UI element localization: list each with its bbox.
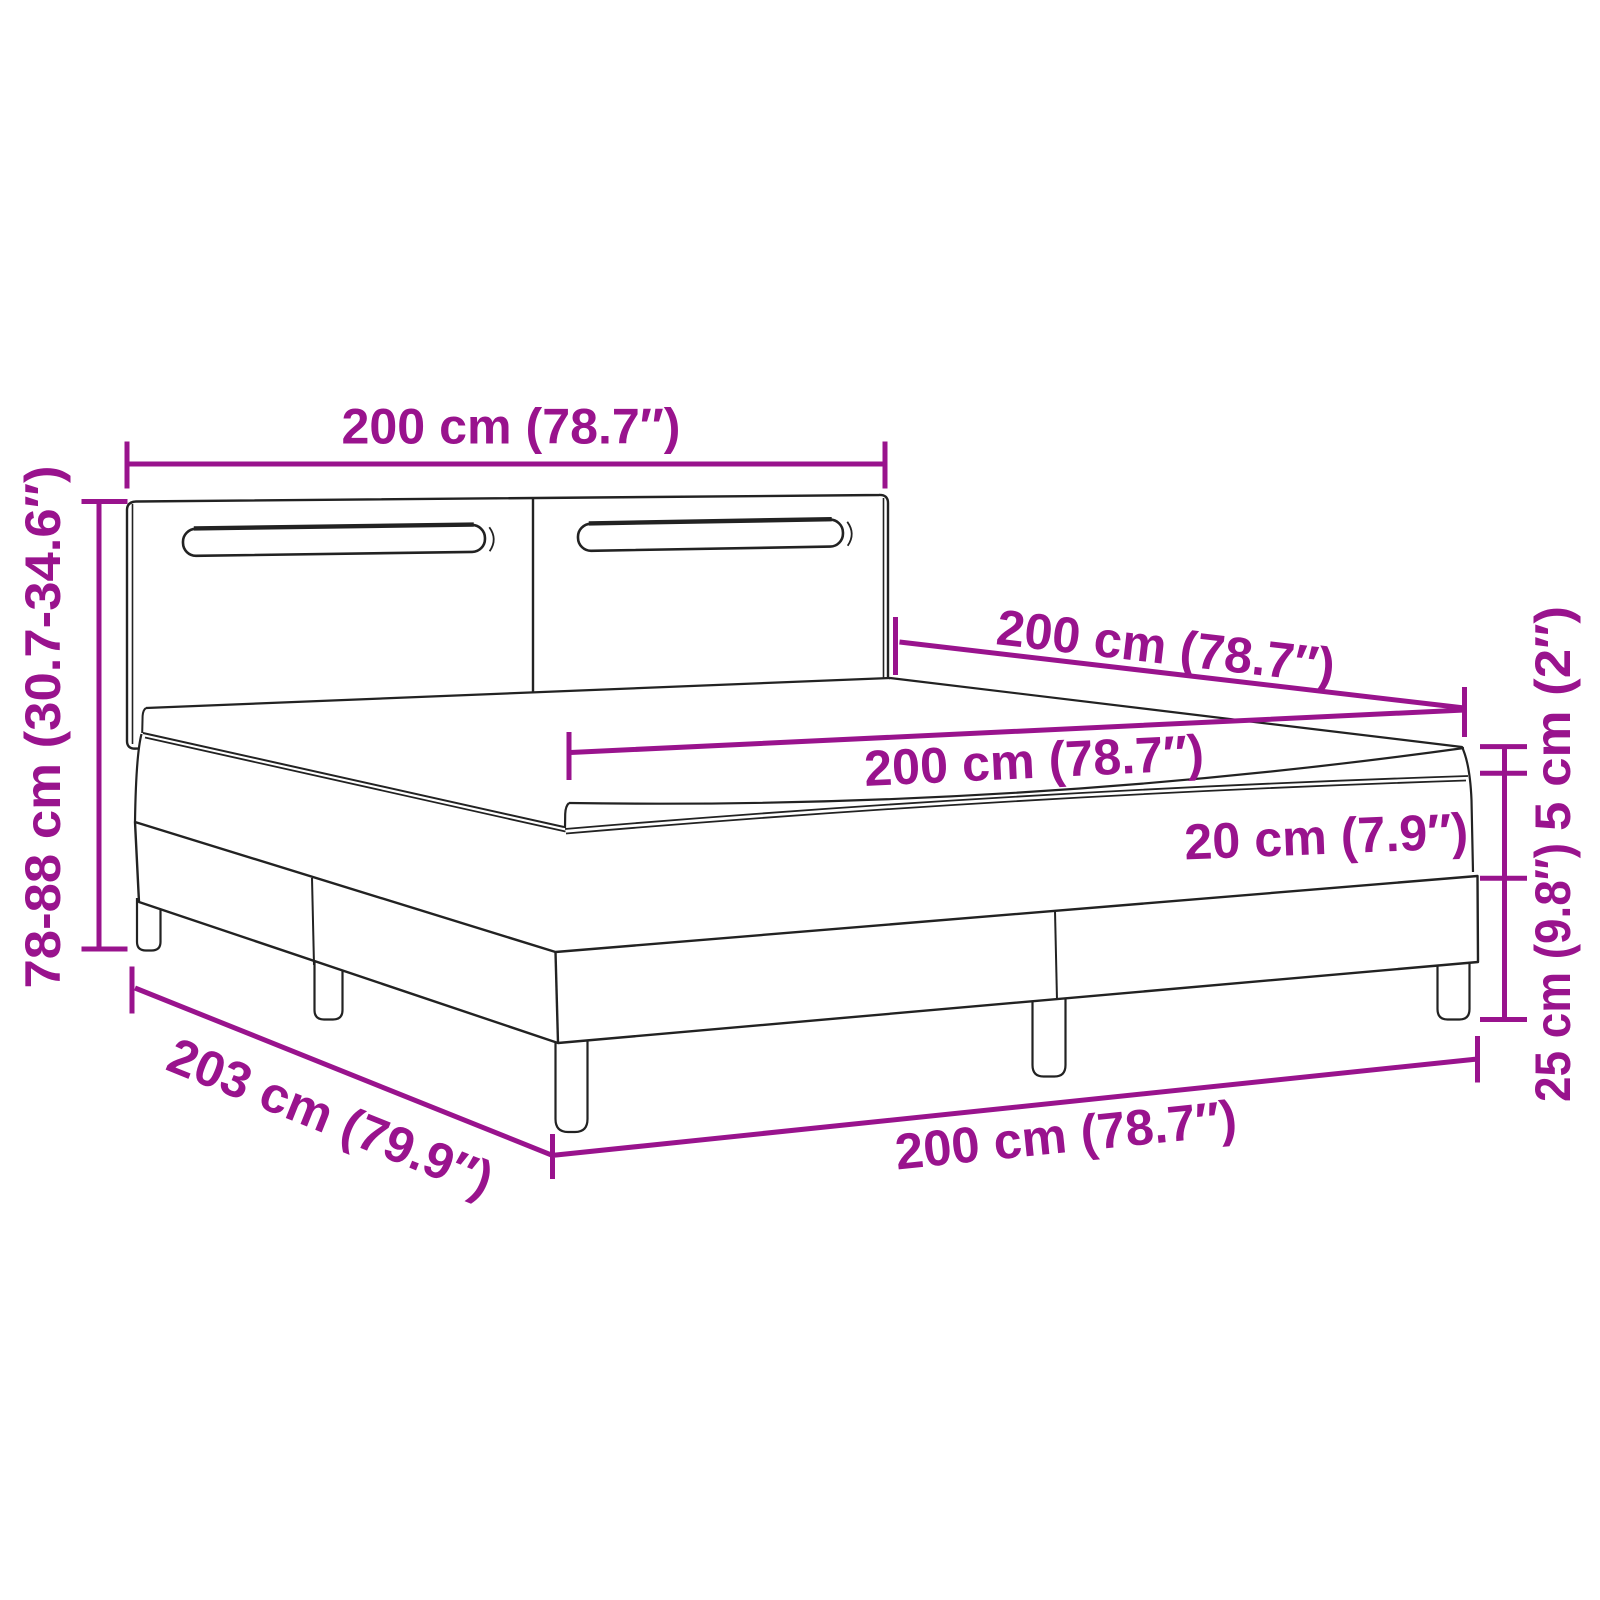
svg-text:25 cm (9.8″): 25 cm (9.8″) bbox=[1524, 843, 1581, 1102]
svg-text:78-88 cm (30.7-34.6″): 78-88 cm (30.7-34.6″) bbox=[14, 466, 71, 989]
svg-text:20 cm (7.9″): 20 cm (7.9″) bbox=[1183, 802, 1469, 870]
svg-text:5 cm (2″): 5 cm (2″) bbox=[1524, 606, 1581, 831]
svg-text:200 cm (78.7″): 200 cm (78.7″) bbox=[342, 398, 681, 455]
